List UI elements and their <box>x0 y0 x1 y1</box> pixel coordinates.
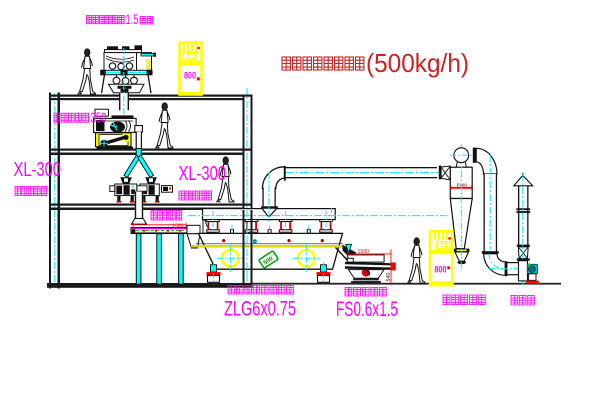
svg-text:1.5: 1.5 <box>126 12 139 27</box>
svg-text:FS0.6x1.5: FS0.6x1.5 <box>336 297 398 321</box>
svg-text:1500: 1500 <box>172 224 184 230</box>
svg-text:XL-300: XL-300 <box>14 158 62 181</box>
svg-text:(500kg/h): (500kg/h) <box>366 48 469 78</box>
svg-text:1500: 1500 <box>358 249 370 255</box>
svg-text:800: 800 <box>435 265 447 275</box>
svg-text:350: 350 <box>91 110 107 126</box>
svg-text:P300: P300 <box>457 182 467 188</box>
svg-text:XL-300: XL-300 <box>179 162 227 185</box>
svg-text:800: 800 <box>184 71 196 81</box>
svg-text:540: 540 <box>386 273 392 282</box>
svg-text:ZLG6x0.75: ZLG6x0.75 <box>224 297 296 321</box>
